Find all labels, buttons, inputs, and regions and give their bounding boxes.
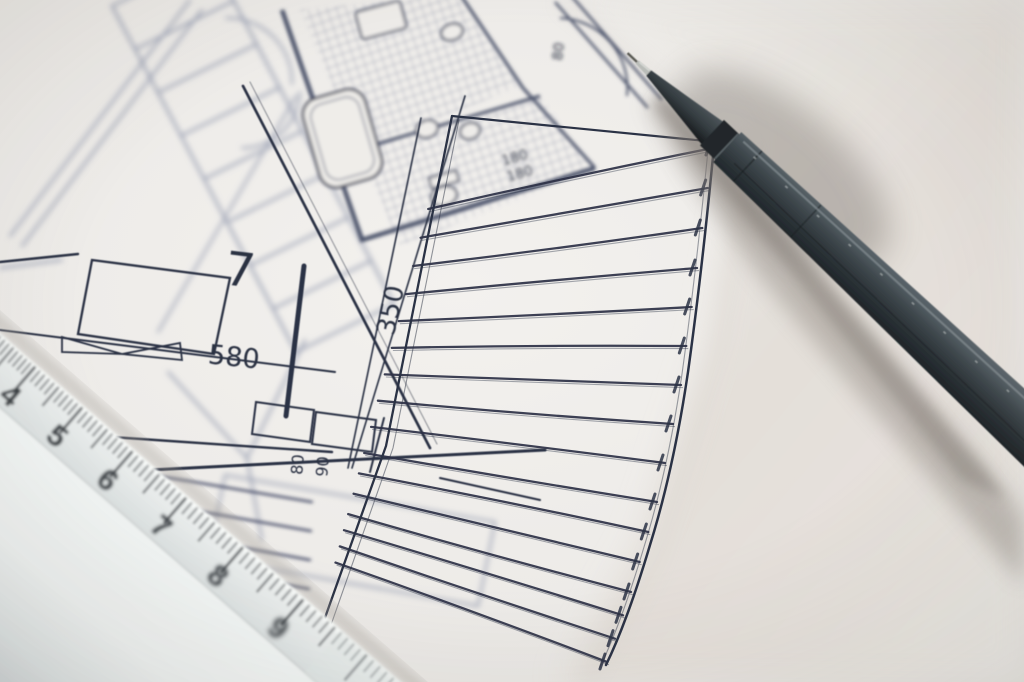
photo-stage: 80 180 180 7 580 350 80 90 [0, 0, 1024, 682]
vignette [0, 0, 1024, 682]
floor-plan-photo: 80 180 180 7 580 350 80 90 [0, 0, 1024, 682]
